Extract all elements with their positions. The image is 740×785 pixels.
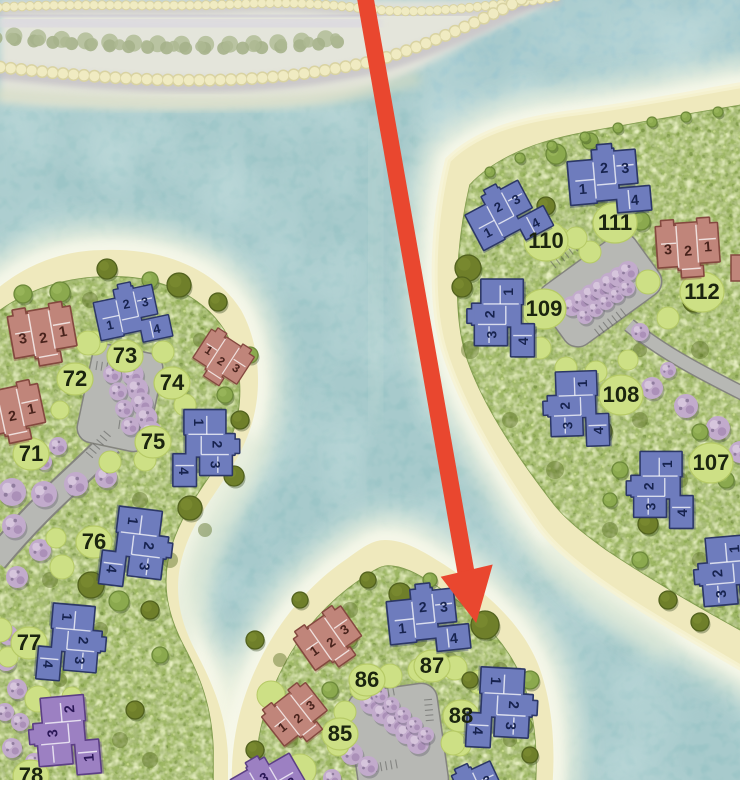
svg-text:86: 86 [355, 667, 379, 692]
svg-text:71: 71 [19, 441, 43, 466]
svg-text:72: 72 [63, 366, 87, 391]
svg-text:85: 85 [328, 721, 352, 746]
svg-text:74: 74 [160, 370, 185, 395]
svg-text:73: 73 [113, 343, 137, 368]
svg-text:78: 78 [19, 763, 43, 780]
svg-text:77: 77 [17, 630, 41, 655]
svg-text:110: 110 [528, 228, 564, 253]
svg-text:108: 108 [603, 382, 640, 407]
svg-text:111: 111 [598, 210, 632, 235]
svg-text:109: 109 [526, 296, 563, 321]
svg-text:88: 88 [449, 703, 473, 728]
svg-text:87: 87 [420, 653, 444, 678]
svg-text:112: 112 [684, 279, 720, 304]
svg-text:75: 75 [141, 429, 165, 454]
svg-text:107: 107 [693, 450, 730, 475]
svg-text:76: 76 [82, 529, 106, 554]
